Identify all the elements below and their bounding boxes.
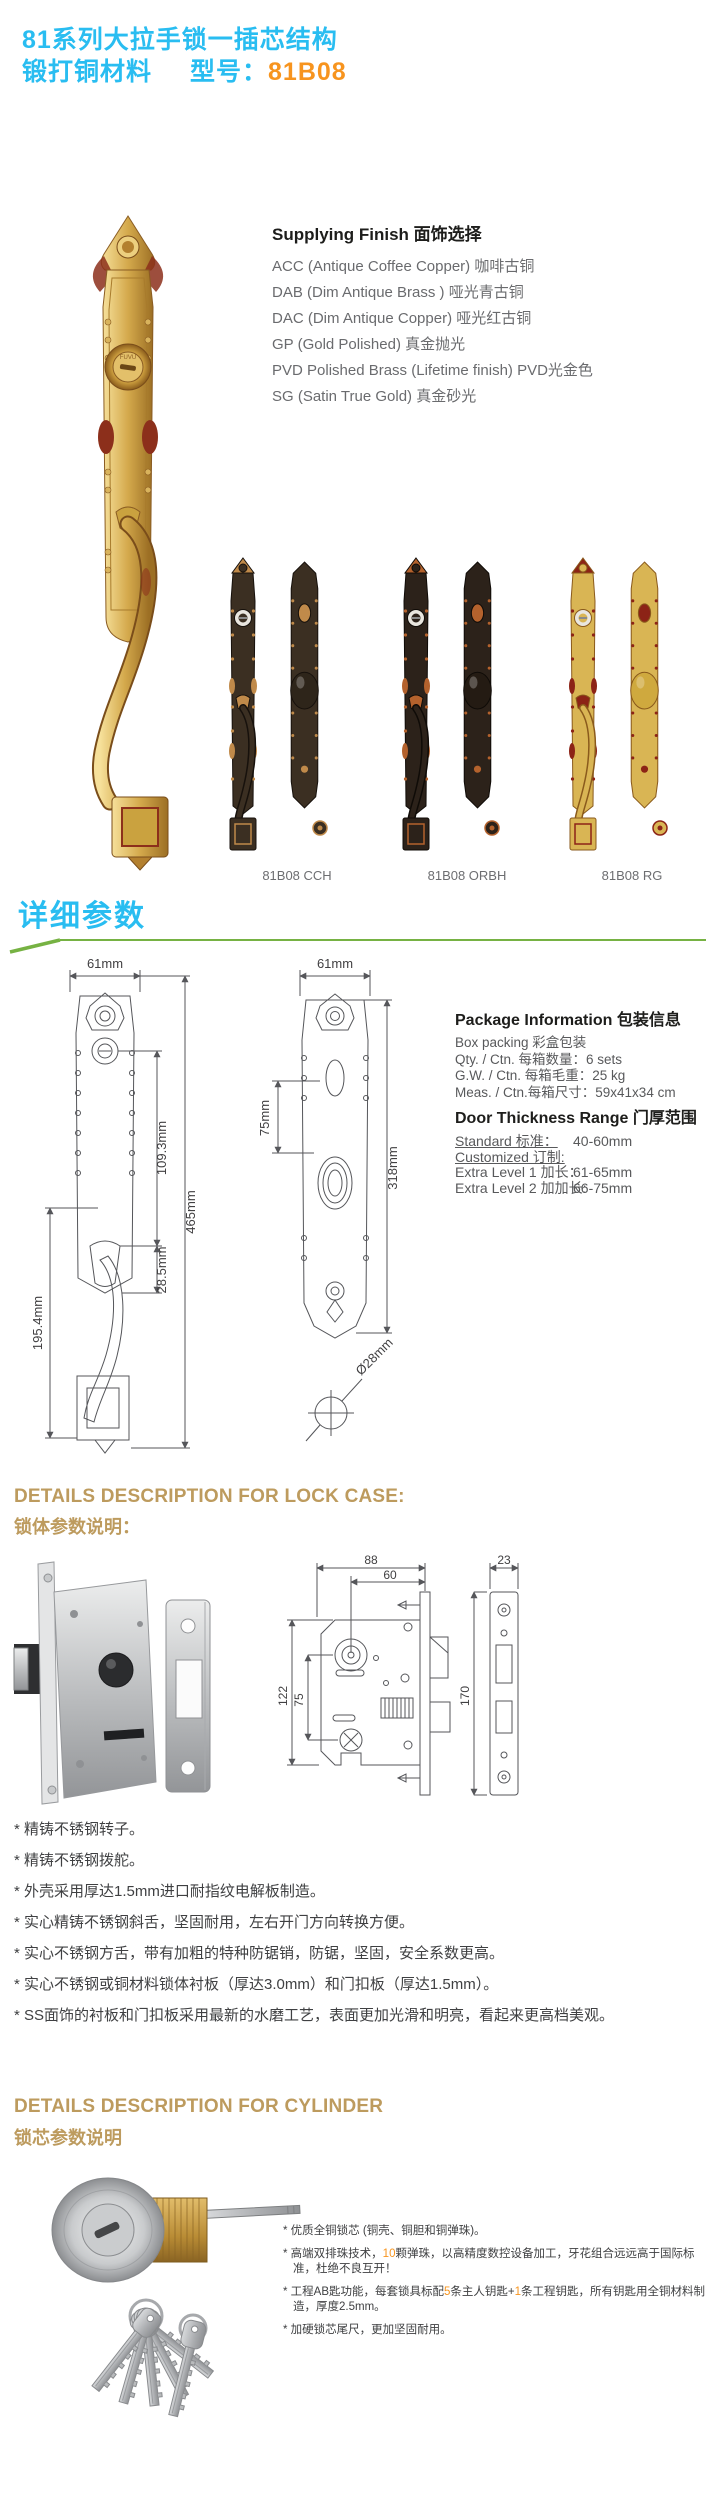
lock-case-photo xyxy=(8,1552,213,1814)
door-standard-label: Standard 标准： xyxy=(455,1133,558,1149)
lock-case-bullet: * SS面饰的衬板和门扣板采用最新的水磨工艺，表面更加光滑和明亮，看起来更高档美… xyxy=(14,2006,702,2025)
lock-case-bullet: * 实心不锈钢或铜材料锁体衬板（厚达3.0mm）和门扣板（厚达1.5mm）。 xyxy=(14,1975,702,1994)
package-heading: Package Information 包装信息 xyxy=(455,1006,710,1030)
variant-label-orbh: 81B08 ORBH xyxy=(402,868,532,883)
package-line: G.W. / Ctn. 每箱毛重：25 kg xyxy=(455,1068,710,1085)
model-label: 型号： xyxy=(190,58,268,86)
door-extra1-label: Extra Level 1 加长： xyxy=(455,1164,583,1180)
page-title: 81系列大拉手锁一插芯结构 xyxy=(22,20,338,56)
lock-case-bullet: * 实心精铸不锈钢斜舌，坚固耐用，左右开门方向转换方便。 xyxy=(14,1913,702,1932)
variant-cch-exterior-photo xyxy=(223,556,263,856)
cylinder-heading-en: DETAILS DESCRIPTION FOR CYLINDER xyxy=(14,2096,383,2118)
package-info: Package Information 包装信息 Box packing 彩盒包… xyxy=(455,1006,710,1101)
lock-case-drawing: 88 60 122 75 23 170 xyxy=(278,1553,533,1813)
lock-case-bullet-list: * 精铸不锈钢转子。 * 精铸不锈钢拨舵。 * 外壳采用厚达1.5mm进口耐指纹… xyxy=(14,1820,702,2037)
dim-front-width: 61mm xyxy=(87,956,123,971)
cylinder-bullet: * 加硬锁芯尾尺，更加坚固耐用。 xyxy=(283,2323,708,2338)
dim-faceplate-height: 170 xyxy=(458,1686,472,1706)
door-customized-label: Customized 订制: xyxy=(455,1149,565,1165)
variant-orbh-interior-photo xyxy=(459,560,496,810)
dim-faceplate-width: 23 xyxy=(497,1553,511,1567)
finish-options: Supplying Finish 面饰选择 ACC (Antique Coffe… xyxy=(272,220,702,410)
finish-item: DAB (Dim Antique Brass ) 哑光青古铜 xyxy=(272,280,702,306)
lock-case-bullet: * 外壳采用厚达1.5mm进口耐指纹电解板制造。 xyxy=(14,1882,702,1901)
dim-front-grip: 195.4mm xyxy=(30,1296,45,1350)
door-extra2-label: Extra Level 2 加加长: xyxy=(455,1180,587,1196)
package-line: Meas. / Ctn.每箱尺寸：59x41x34 cm xyxy=(455,1085,710,1102)
door-extra1-value: 61-65mm xyxy=(573,1165,632,1181)
lock-case-bullet: * 精铸不锈钢转子。 xyxy=(14,1820,702,1839)
dim-back-width: 61mm xyxy=(317,956,353,971)
package-line: Qty. / Ctn. 每箱数量：6 sets xyxy=(455,1052,710,1069)
back-plate-drawing: 61mm 75mm 318mm Ø28mm xyxy=(258,948,413,1483)
dim-case-width: 88 xyxy=(364,1553,378,1567)
variant-rg-interior-photo xyxy=(626,560,663,810)
door-extra2-value: 66-75mm xyxy=(573,1181,632,1197)
dim-back-rose: Ø28mm xyxy=(353,1335,396,1378)
cylinder-heading-cn: 锁芯参数说明 xyxy=(14,2124,122,2150)
door-thickness-heading: Door Thickness Range 门厚范围 xyxy=(455,1104,710,1128)
cylinder-bullet: * 优质全铜锁芯 (铜壳、铜胆和铜弹珠)。 xyxy=(283,2224,708,2239)
variant-cch-cylinder-dot xyxy=(312,820,328,836)
dim-back-total: 318mm xyxy=(385,1146,400,1189)
lock-case-bullet: * 精铸不锈钢拨舵。 xyxy=(14,1851,702,1870)
door-standard-value: 40-60mm xyxy=(573,1134,632,1150)
dim-front-total: 465mm xyxy=(183,1190,198,1233)
door-thickness-info: Door Thickness Range 门厚范围 Standard 标准： 4… xyxy=(455,1104,710,1196)
spec-sheet-page: 81系列大拉手锁一插芯结构 锻打铜材料型号：81B08 FUVU xyxy=(0,0,710,2494)
variant-label-cch: 81B08 CCH xyxy=(232,868,362,883)
dim-front-thumb: 28.5mm xyxy=(154,1247,169,1294)
variant-label-rg: 81B08 RG xyxy=(567,868,697,883)
cylinder-bullet: * 高端双排珠技术，10颗弹珠，以高精度数控设备加工，牙花组合远远高于国际标准，… xyxy=(283,2247,708,2277)
finish-item: ACC (Antique Coffee Copper) 咖啡古铜 xyxy=(272,254,702,280)
dim-case-height: 122 xyxy=(278,1686,290,1706)
model-number: 81B08 xyxy=(268,58,347,86)
dim-centers: 75 xyxy=(292,1693,306,1707)
front-handle-drawing: 61mm 109.3mm 28.5mm 465mm 195.4mm xyxy=(20,948,270,1508)
package-line: Box packing 彩盒包装 xyxy=(455,1035,710,1052)
lock-case-bullet: * 实心不锈钢方舌，带有加粗的特种防锯销，防锯，坚固，安全系数更高。 xyxy=(14,1944,702,1963)
keys-photo xyxy=(28,2284,293,2454)
material-text: 锻打铜材料 xyxy=(22,58,152,86)
variant-rg-exterior-photo xyxy=(563,556,603,856)
dim-front-upper: 109.3mm xyxy=(154,1121,169,1175)
lock-case-heading-cn: 锁体参数说明： xyxy=(14,1513,140,1539)
dim-backset: 60 xyxy=(383,1568,397,1582)
page-subtitle: 锻打铜材料型号：81B08 xyxy=(22,52,347,88)
variant-orbh-exterior-photo xyxy=(396,556,436,856)
finish-item: GP (Gold Polished) 真金抛光 xyxy=(272,332,702,358)
brand-mark: FUVU xyxy=(120,355,136,361)
finish-heading: Supplying Finish 面饰选择 xyxy=(272,220,702,245)
finish-item: SG (Satin True Gold) 真金砂光 xyxy=(272,384,702,410)
variant-cch-interior-photo xyxy=(286,560,323,810)
variant-rg-cylinder-dot xyxy=(652,820,668,836)
finish-item: PVD Polished Brass (Lifetime finish) PVD… xyxy=(272,358,702,384)
highlight-number: 10 xyxy=(383,2248,396,2260)
cylinder-photo xyxy=(20,2172,310,2290)
dim-back-knob: 75mm xyxy=(258,1100,272,1136)
variant-orbh-cylinder-dot xyxy=(484,820,500,836)
finish-item: DAC (Dim Antique Copper) 哑光红古铜 xyxy=(272,306,702,332)
cylinder-bullet-list: * 优质全铜锁芯 (铜壳、铜胆和铜弹珠)。 * 高端双排珠技术，10颗弹珠，以高… xyxy=(283,2224,708,2346)
cylinder-bullet: * 工程AB匙功能，每套锁具标配5条主人钥匙+1条工程钥匙，所有钥匙用全铜材料制… xyxy=(283,2285,708,2315)
main-handle-photo: FUVU xyxy=(50,212,205,872)
lock-case-heading-en: DETAILS DESCRIPTION FOR LOCK CASE: xyxy=(14,1486,405,1508)
